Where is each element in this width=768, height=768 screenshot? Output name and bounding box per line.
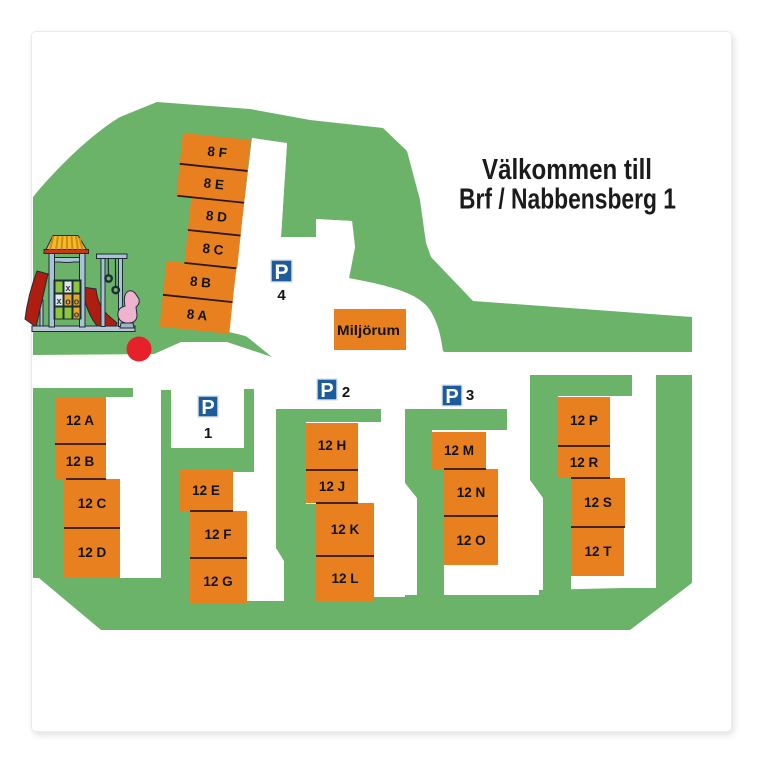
svg-text:12 P: 12 P <box>570 413 598 428</box>
svg-text:12 S: 12 S <box>584 495 612 510</box>
svg-text:P: P <box>320 380 333 402</box>
svg-text:o: o <box>65 297 71 307</box>
svg-text:8 E: 8 E <box>203 175 225 192</box>
svg-text:12 B: 12 B <box>66 454 95 469</box>
svg-text:P: P <box>201 397 214 419</box>
svg-text:P: P <box>445 386 458 408</box>
svg-text:x: x <box>65 283 70 293</box>
svg-text:8 C: 8 C <box>202 241 225 258</box>
svg-text:12 K: 12 K <box>331 522 360 537</box>
svg-text:12 E: 12 E <box>192 483 220 498</box>
svg-text:12 N: 12 N <box>457 485 486 500</box>
svg-text:12 D: 12 D <box>78 545 107 560</box>
svg-text:Välkommen till: Välkommen till <box>482 154 652 186</box>
svg-text:x: x <box>56 296 61 306</box>
svg-text:Miljörum: Miljörum <box>337 322 400 338</box>
svg-text:Brf / Nabbensberg 1: Brf / Nabbensberg 1 <box>459 184 676 216</box>
svg-text:4: 4 <box>277 287 286 304</box>
svg-text:8 F: 8 F <box>207 144 228 161</box>
svg-text:12 R: 12 R <box>570 455 599 470</box>
svg-text:12 A: 12 A <box>66 413 94 428</box>
svg-text:o: o <box>74 310 80 320</box>
svg-text:1: 1 <box>204 425 212 442</box>
svg-text:12 C: 12 C <box>78 496 107 511</box>
svg-text:8 A: 8 A <box>186 306 208 323</box>
svg-text:12 L: 12 L <box>331 571 358 586</box>
svg-text:8 B: 8 B <box>189 274 212 291</box>
svg-text:12 T: 12 T <box>584 544 612 559</box>
svg-text:P: P <box>274 261 288 284</box>
svg-text:2: 2 <box>342 384 350 401</box>
svg-text:12 H: 12 H <box>318 438 347 453</box>
svg-text:12 O: 12 O <box>456 533 485 548</box>
svg-text:12 M: 12 M <box>444 443 474 458</box>
svg-text:12 F: 12 F <box>204 527 231 542</box>
svg-text:12 G: 12 G <box>203 574 232 589</box>
svg-text:o: o <box>74 297 80 307</box>
svg-text:3: 3 <box>466 387 474 404</box>
svg-text:12 J: 12 J <box>319 479 345 494</box>
svg-text:8 D: 8 D <box>205 208 228 225</box>
